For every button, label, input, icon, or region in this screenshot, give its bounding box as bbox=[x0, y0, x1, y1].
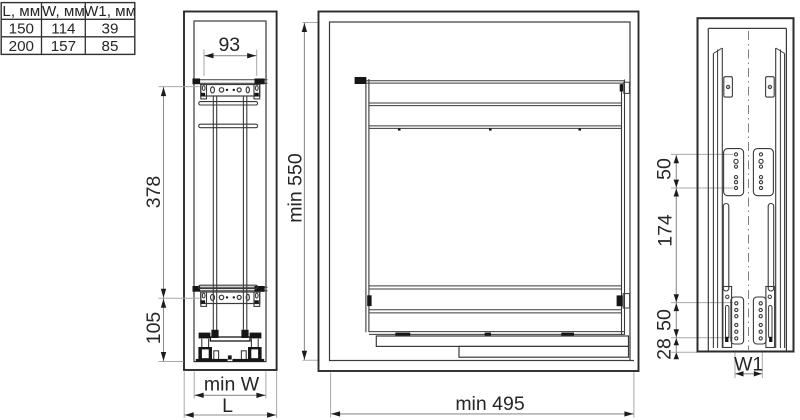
svg-text:39: 39 bbox=[102, 20, 119, 37]
svg-text:105: 105 bbox=[143, 312, 165, 345]
svg-text:50: 50 bbox=[654, 158, 676, 180]
svg-text:L: L bbox=[222, 395, 233, 417]
svg-text:378: 378 bbox=[143, 176, 165, 209]
svg-text:200: 200 bbox=[9, 38, 34, 55]
svg-text:93: 93 bbox=[218, 34, 240, 56]
svg-text:174: 174 bbox=[655, 214, 677, 247]
svg-text:157: 157 bbox=[51, 38, 76, 55]
svg-text:85: 85 bbox=[102, 38, 119, 55]
svg-text:W, мм: W, мм bbox=[42, 3, 85, 20]
svg-text:min 495: min 495 bbox=[455, 393, 525, 415]
svg-text:28: 28 bbox=[654, 338, 676, 360]
svg-text:min 550: min 550 bbox=[285, 153, 307, 223]
svg-text:W1, мм: W1, мм bbox=[84, 3, 136, 20]
svg-text:114: 114 bbox=[51, 20, 75, 37]
svg-text:min W: min W bbox=[204, 374, 260, 396]
svg-text:50: 50 bbox=[654, 309, 676, 331]
svg-text:150: 150 bbox=[9, 20, 34, 37]
svg-text:L, мм: L, мм bbox=[2, 3, 40, 20]
svg-text:W1: W1 bbox=[734, 353, 763, 375]
